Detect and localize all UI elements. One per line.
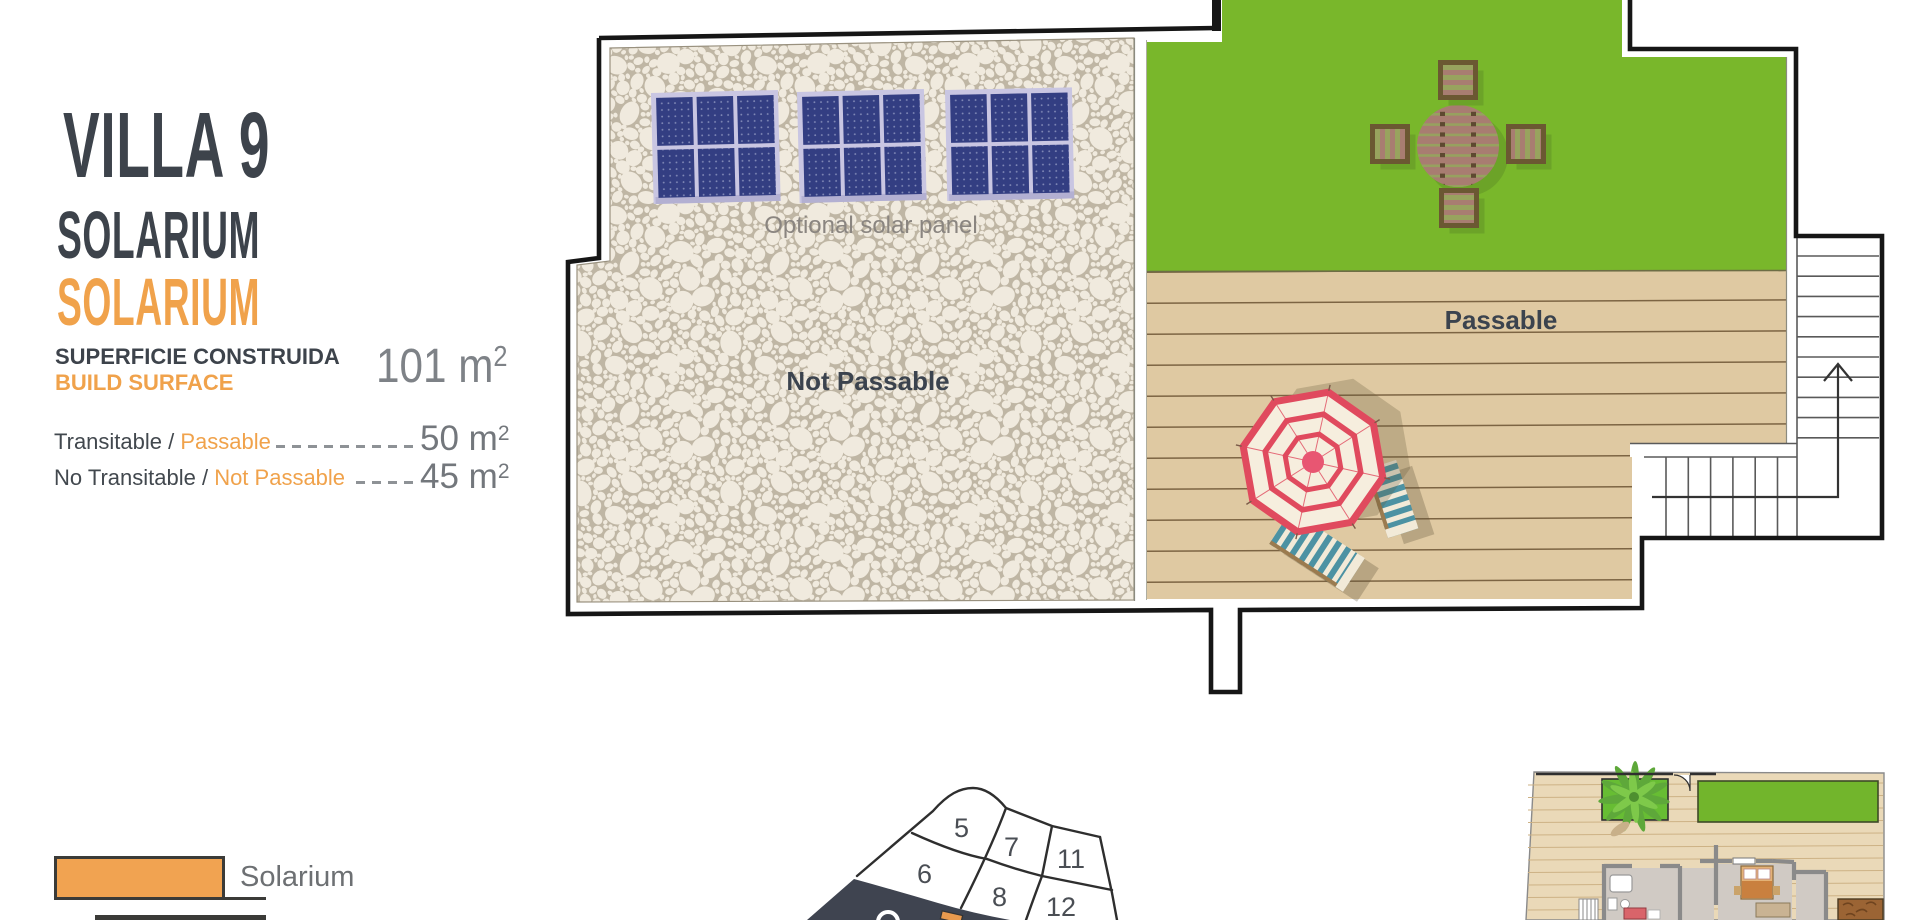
svg-text:Not Passable: Not Passable [786,366,949,396]
svg-text:Optional solar panel: Optional solar panel [764,212,977,239]
svg-text:8: 8 [992,882,1007,912]
svg-text:12: 12 [1046,892,1076,920]
svg-text:6: 6 [917,859,932,889]
svg-text:7: 7 [1004,832,1019,862]
svg-text:Passable: Passable [1445,305,1558,335]
svg-text:11: 11 [1057,844,1085,874]
svg-text:5: 5 [954,813,969,843]
